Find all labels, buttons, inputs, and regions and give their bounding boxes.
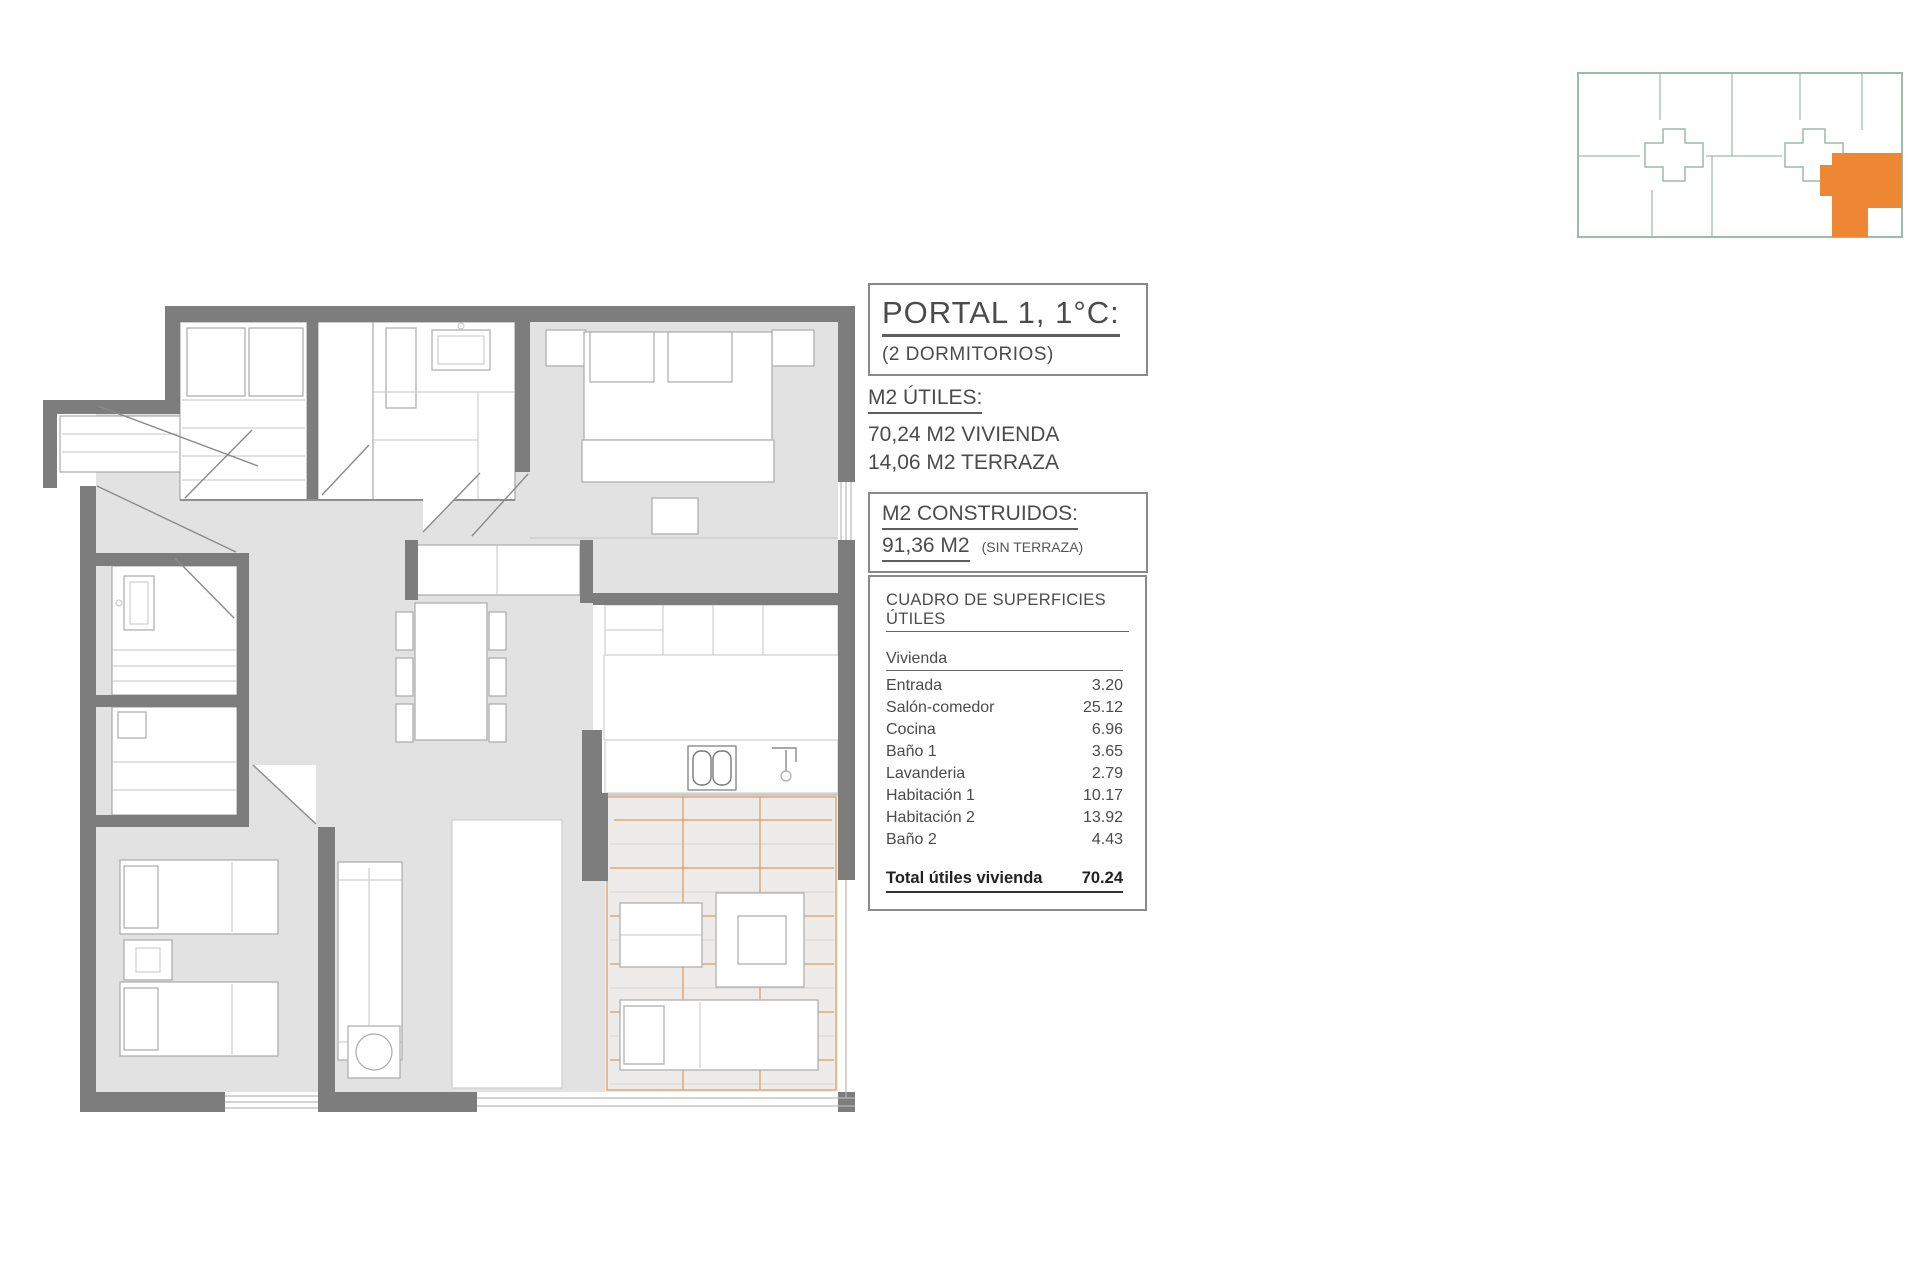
surfaces-table: CUADRO DE SUPERFICIES ÚTILES Vivienda En…	[868, 575, 1147, 911]
apartment-floor-plan	[35, 240, 870, 1140]
m2-construidos-value: 91,36 M2	[882, 534, 970, 562]
table-row: Salón-comedor25.12	[886, 697, 1123, 719]
window-bottom	[225, 1092, 318, 1112]
window-right	[838, 482, 855, 540]
table-row: Cocina6.96	[886, 719, 1123, 741]
unit-title: PORTAL 1, 1°C:	[882, 295, 1120, 337]
hall-wardrobe	[415, 545, 580, 595]
highlighted-unit	[1820, 153, 1902, 237]
m2-utiles-block: M2 ÚTILES: 70,24 M2 VIVIENDA 14,06 M2 TE…	[868, 386, 1059, 478]
surfaces-table-total: Total útiles vivienda 70.24	[886, 869, 1123, 893]
room-dressing	[318, 322, 373, 500]
room-laundry	[112, 707, 237, 815]
m2-construidos-note: (SIN TERRAZA)	[982, 539, 1084, 555]
m2-utiles-terraza: 14,06 M2 TERRAZA	[868, 449, 1059, 477]
m2-construidos-heading: M2 CONSTRUIDOS:	[882, 502, 1078, 530]
floor-plan-page: PORTAL 1, 1°C: (2 DORMITORIOS) M2 ÚTILES…	[0, 0, 1920, 1280]
terrace	[605, 795, 838, 1092]
unit-title-box: PORTAL 1, 1°C: (2 DORMITORIOS)	[868, 283, 1148, 376]
table-row: Entrada3.20	[886, 675, 1123, 697]
table-row: Habitación 213.92	[886, 807, 1123, 829]
table-row: Baño 13.65	[886, 741, 1123, 763]
dining-table	[396, 603, 506, 742]
table-row: Baño 24.43	[886, 829, 1123, 851]
m2-utiles-heading: M2 ÚTILES:	[868, 386, 982, 414]
room-entry-closet	[60, 416, 180, 472]
surfaces-table-rows: Entrada3.20 Salón-comedor25.12 Cocina6.9…	[886, 675, 1123, 851]
building-key-plan	[1570, 62, 1915, 248]
room-bath-1	[112, 566, 237, 695]
room-closet-a	[180, 322, 307, 500]
surfaces-table-group: Vivienda	[886, 650, 1123, 671]
table-row: Lavanderia2.79	[886, 763, 1123, 785]
m2-construidos-box: M2 CONSTRUIDOS: 91,36 M2 (SIN TERRAZA)	[868, 492, 1148, 573]
table-row: Habitación 110.17	[886, 785, 1123, 807]
room-kitchen	[593, 605, 838, 793]
unit-subtitle: (2 DORMITORIOS)	[882, 344, 1134, 366]
kitchen-sink-icon	[688, 746, 736, 790]
surfaces-table-title: CUADRO DE SUPERFICIES ÚTILES	[886, 591, 1129, 632]
stair-core-icon	[1645, 129, 1703, 181]
m2-utiles-vivienda: 70,24 M2 VIVIENDA	[868, 421, 1059, 449]
